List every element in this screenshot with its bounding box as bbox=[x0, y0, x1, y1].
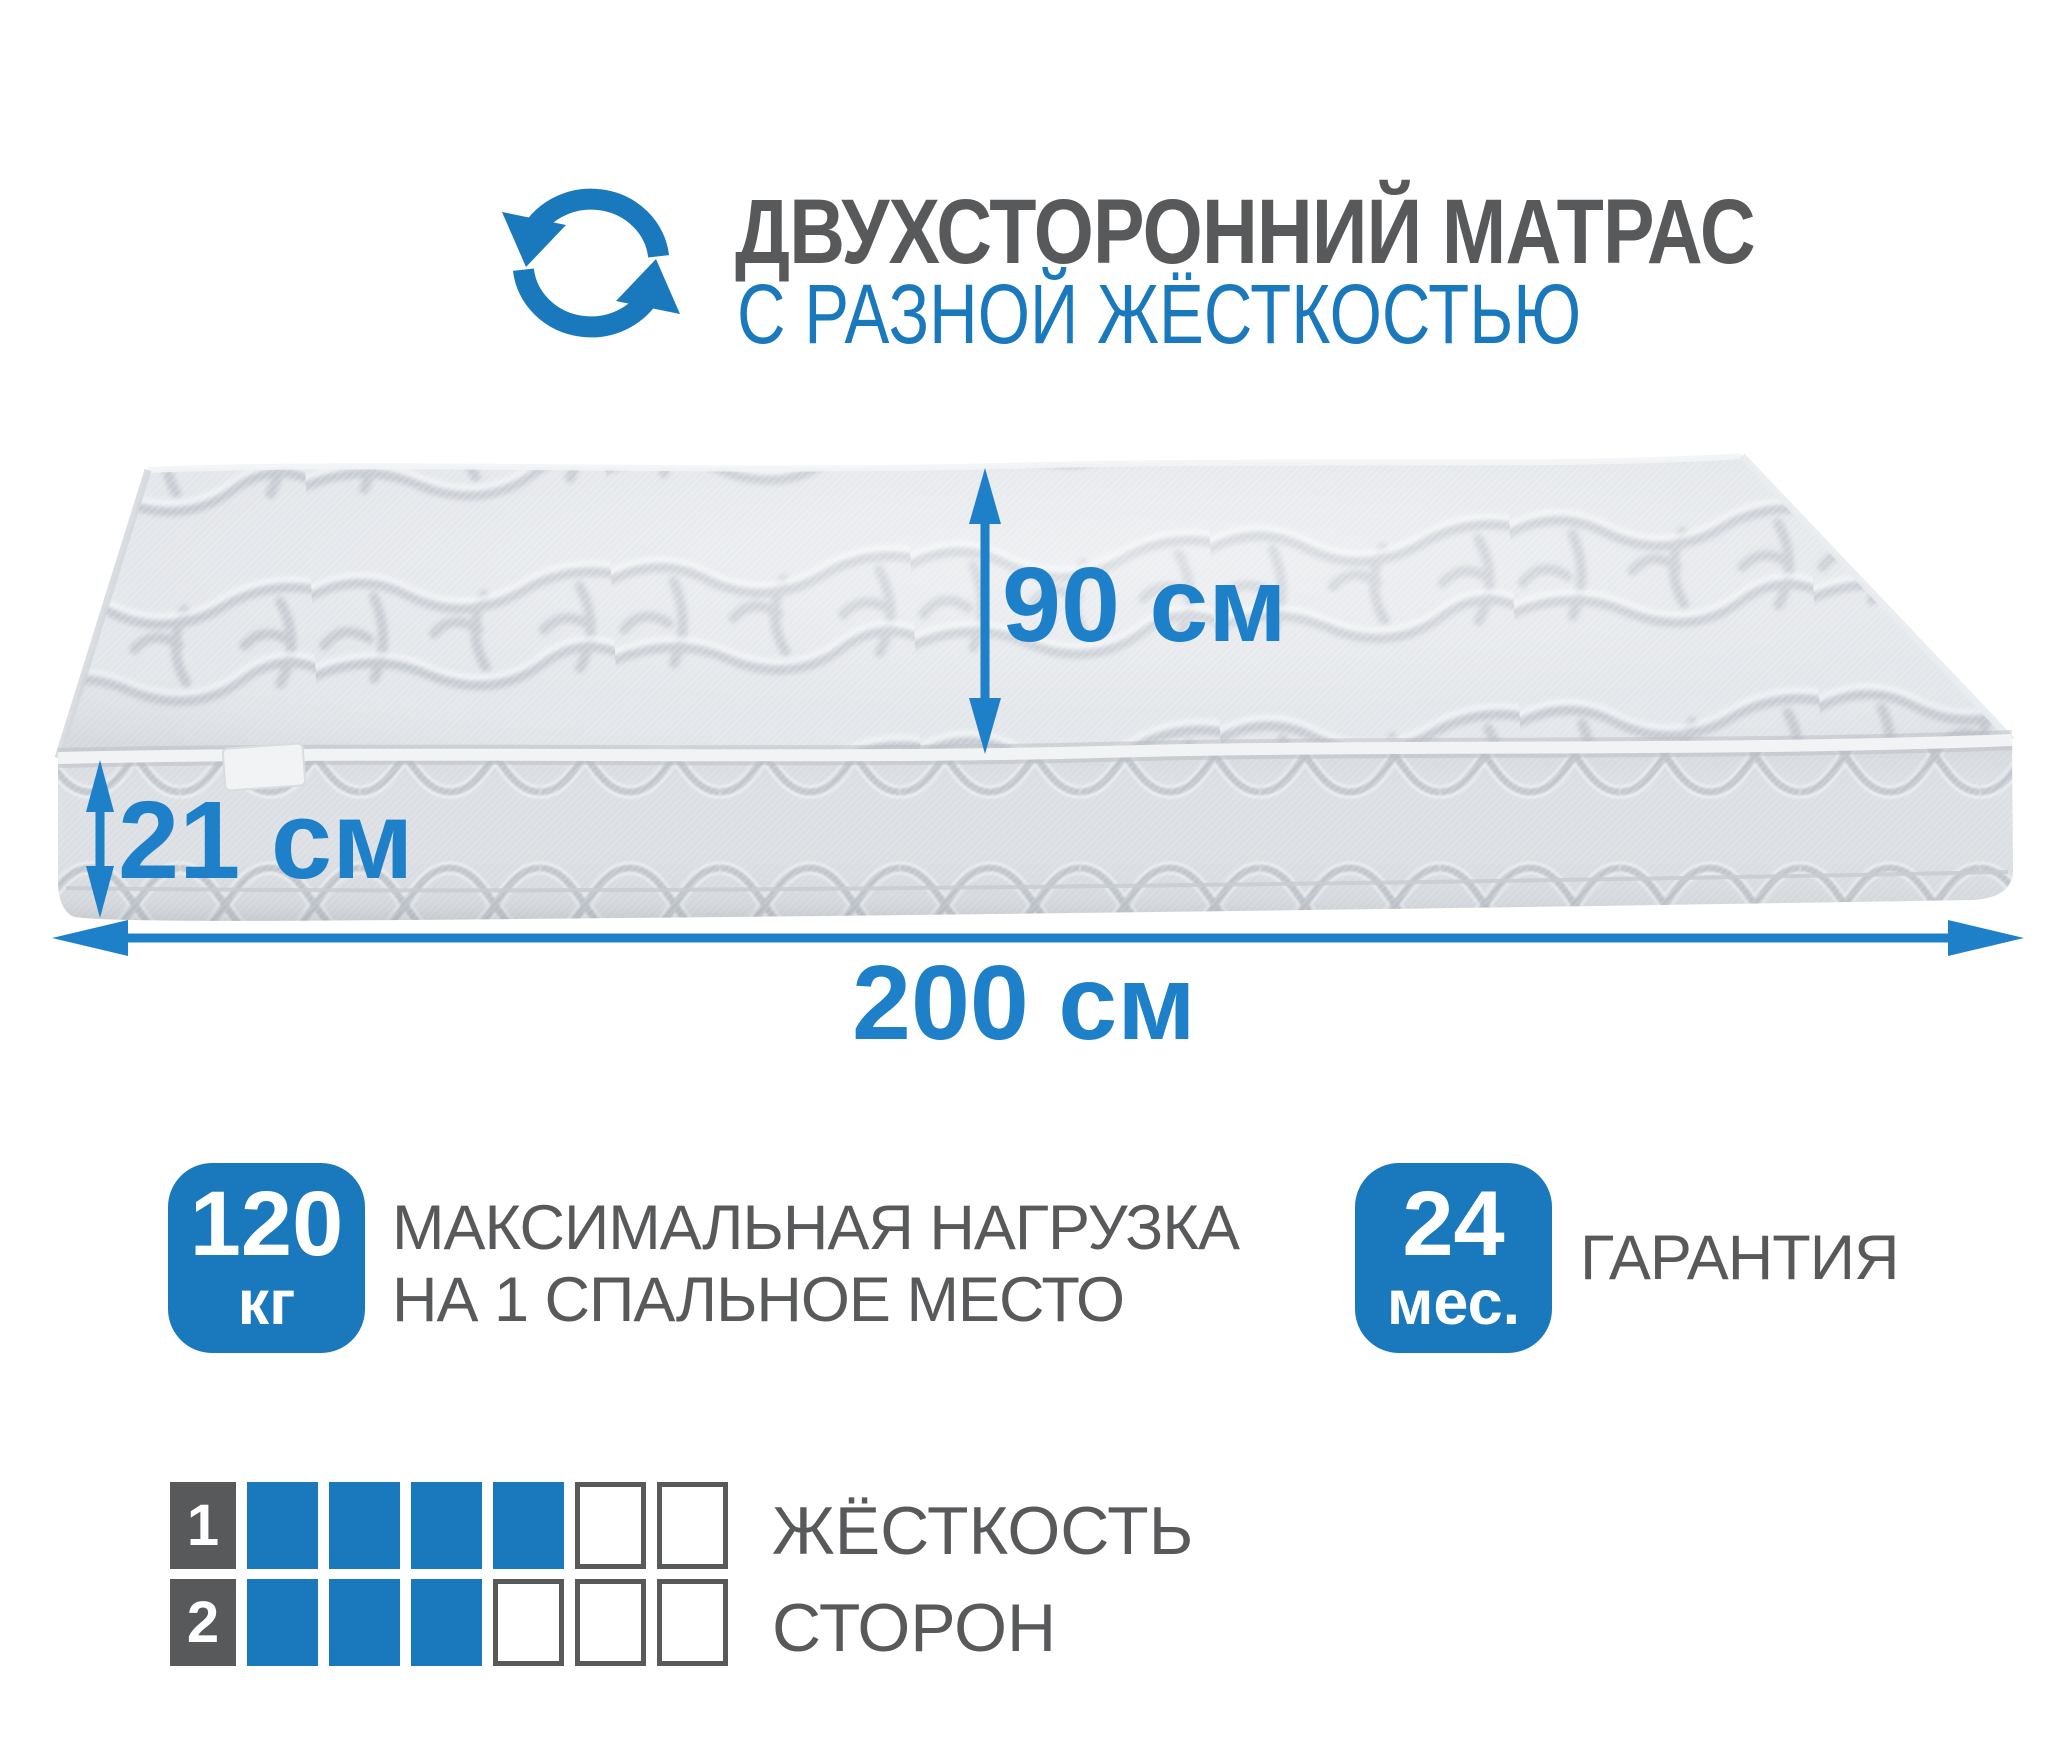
max-load-line2: НА 1 СПАЛЬНОЕ МЕСТО bbox=[392, 1264, 1239, 1336]
hardness-cell-empty bbox=[493, 1579, 564, 1666]
hardness-cell-empty bbox=[575, 1482, 646, 1569]
max-load-unit: кг bbox=[238, 1272, 296, 1335]
max-load-badge: 120 кг bbox=[168, 1163, 365, 1353]
max-load-line1: МАКСИМАЛЬНАЯ НАГРУЗКА bbox=[392, 1192, 1239, 1264]
hardness-cells bbox=[247, 1579, 728, 1666]
hardness-caption-line1: ЖЁСТКОСТЬ bbox=[772, 1497, 1193, 1565]
hardness-row-number: 1 bbox=[170, 1482, 236, 1569]
hardness-cell-filled bbox=[493, 1482, 564, 1569]
hardness-cell-empty bbox=[657, 1482, 728, 1569]
hardness-row: 2 bbox=[170, 1579, 728, 1666]
hardness-cells bbox=[247, 1482, 728, 1569]
warranty-badge: 24 мес. bbox=[1355, 1163, 1552, 1353]
max-load-description: МАКСИМАЛЬНАЯ НАГРУЗКА НА 1 СПАЛЬНОЕ МЕСТ… bbox=[392, 1192, 1239, 1336]
hardness-cell-filled bbox=[329, 1482, 400, 1569]
hardness-cell-filled bbox=[329, 1579, 400, 1666]
hardness-caption-line2: СТОРОН bbox=[772, 1594, 1056, 1662]
mattress-illustration bbox=[0, 380, 2048, 1020]
sleeping-width-label: 90 см bbox=[1002, 552, 1287, 658]
thickness-label: 21 см bbox=[118, 786, 413, 896]
hardness-cell-filled bbox=[247, 1579, 318, 1666]
page-subtitle: С РАЗНОЙ ЖЁСТКОСТЬЮ bbox=[737, 266, 1581, 363]
hardness-cell-empty bbox=[657, 1579, 728, 1666]
length-label: 200 см bbox=[852, 950, 1196, 1056]
mattress-infographic: ДВУХСТОРОННИЙ МАТРАС С РАЗНОЙ ЖЁСТКОСТЬЮ bbox=[0, 0, 2048, 1757]
warranty-value: 24 bbox=[1402, 1181, 1504, 1268]
hardness-cell-filled bbox=[411, 1579, 482, 1666]
hardness-cell-empty bbox=[575, 1579, 646, 1666]
warranty-label: ГАРАНТИЯ bbox=[1580, 1222, 1899, 1294]
max-load-value: 120 bbox=[190, 1181, 344, 1268]
warranty-unit: мес. bbox=[1387, 1272, 1520, 1335]
rotate-double-sided-icon bbox=[488, 168, 688, 363]
hardness-cell-filled bbox=[247, 1482, 318, 1569]
hardness-row-number: 2 bbox=[170, 1579, 236, 1666]
hardness-cell-filled bbox=[411, 1482, 482, 1569]
hardness-row: 1 bbox=[170, 1482, 728, 1569]
